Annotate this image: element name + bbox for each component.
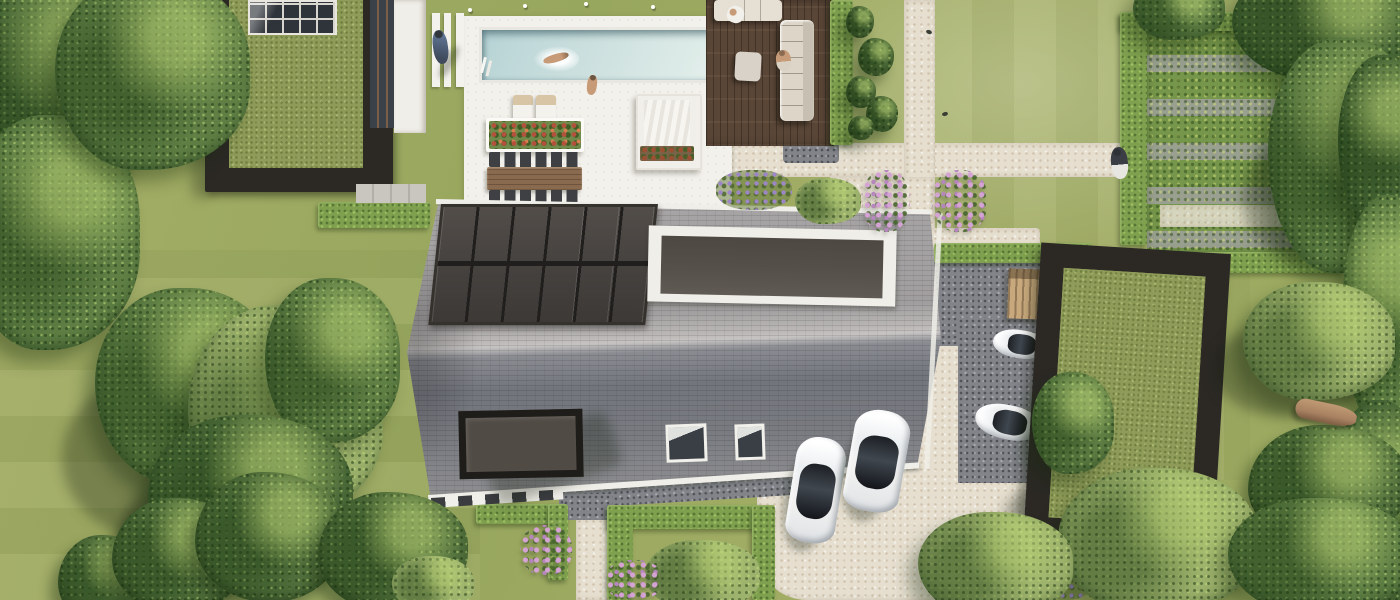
shrub-path-south	[795, 178, 861, 224]
bush-br-west	[918, 512, 1073, 600]
garden-house-paving	[356, 184, 426, 203]
garden-house-glass-wall	[370, 0, 394, 128]
dormer-north-roof	[660, 236, 883, 299]
flower-planter-plants	[489, 121, 581, 149]
forest-left-3	[55, 0, 250, 170]
hydrangea-path-east	[932, 170, 988, 232]
hydrangea-path-west	[862, 170, 910, 232]
timber-deck	[706, 0, 834, 146]
dining-chairs-north	[489, 152, 582, 167]
garden-house-white-wall	[394, 0, 426, 133]
car-glass	[1006, 333, 1036, 356]
bollard-light-4	[651, 5, 655, 9]
aerial-villa-render	[0, 0, 1400, 600]
bollard-light-2	[523, 4, 527, 8]
bush-bl-light	[392, 556, 474, 600]
bollard-light-1	[468, 8, 472, 12]
car-glass	[852, 432, 901, 491]
dining-table	[487, 167, 582, 190]
car-glass	[794, 461, 838, 521]
bed-conifer-5	[848, 116, 874, 140]
daybed-canopy	[644, 100, 690, 146]
skylight-2	[734, 423, 765, 460]
hydrangea-garden-br	[605, 560, 663, 600]
daybed-planter	[640, 146, 694, 161]
gravel-south-stub	[563, 494, 613, 520]
bollard-light-3	[584, 2, 588, 6]
solar-panel-array	[428, 204, 658, 325]
bed-conifer-2	[858, 38, 894, 76]
shrub-island	[1243, 282, 1395, 400]
dormer-south	[458, 409, 583, 480]
shrubs-garden-br	[645, 540, 760, 600]
deck-sofa-north	[714, 0, 782, 21]
skylight-1	[665, 423, 707, 462]
car-glass	[991, 408, 1030, 438]
bush-br-mid	[1228, 498, 1400, 600]
swimming-pool	[479, 27, 715, 83]
hydrangea-sw-house	[520, 525, 572, 575]
bush-br-fern	[1058, 468, 1258, 600]
lavender-bed	[716, 170, 792, 210]
hedge-below-gardenhouse	[318, 202, 430, 228]
garden-house-skylight	[248, 0, 337, 35]
bed-conifer-1	[846, 6, 874, 38]
deck-ottoman	[734, 51, 761, 81]
veg-hedge-west	[1120, 12, 1147, 245]
bush-driveway-east	[1032, 372, 1114, 474]
